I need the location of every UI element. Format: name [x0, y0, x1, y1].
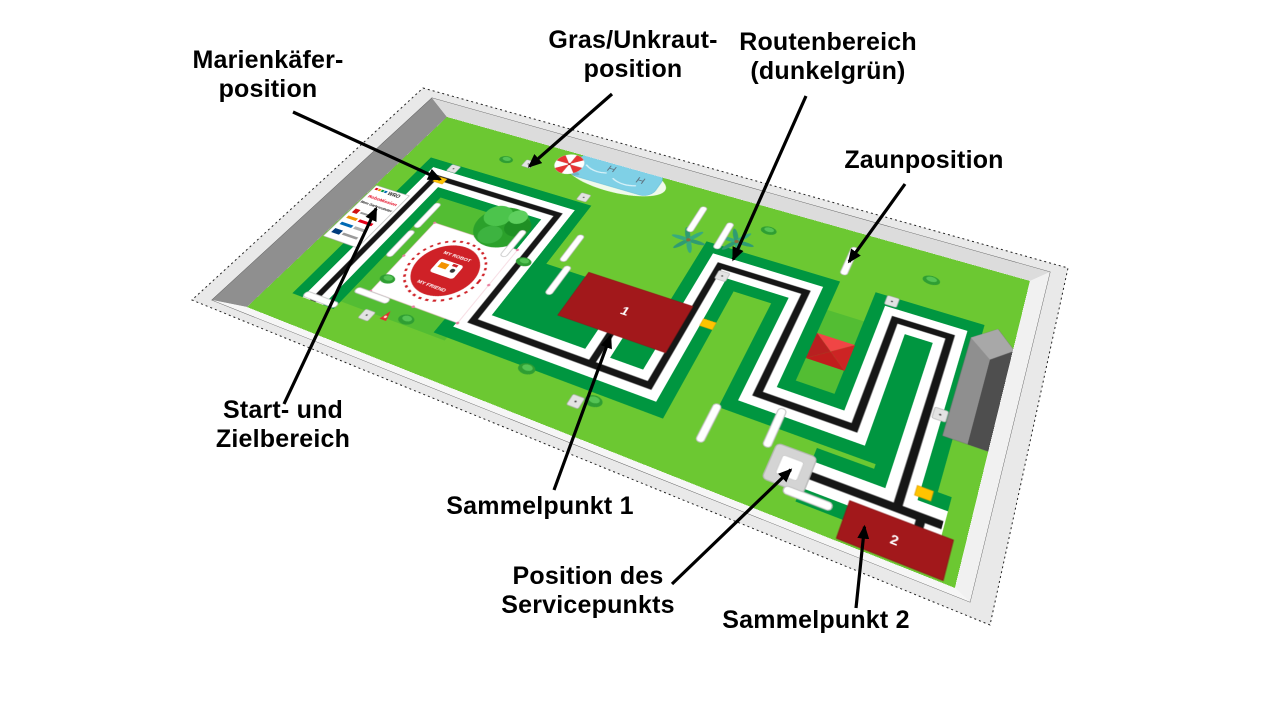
label-marienkaefer-position: Marienkäfer- position — [192, 46, 343, 104]
label-gras-unkraut-position: Gras/Unkraut- position — [548, 26, 717, 84]
label-start-zielbereich: Start- und Zielbereich — [216, 396, 350, 454]
label-routenbereich: Routenbereich (dunkelgrün) — [739, 28, 917, 86]
label-sammelpunkt-2: Sammelpunkt 2 — [722, 606, 909, 635]
game-mat: MY ROBOT MY FRIEND — [247, 117, 1030, 588]
diagram-stage: MY ROBOT MY FRIEND — [0, 0, 1280, 720]
label-zaunposition: Zaunposition — [844, 146, 1003, 175]
label-sammelpunkt-1: Sammelpunkt 1 — [446, 492, 633, 521]
label-position-servicepunkt: Position des Servicepunkts — [501, 562, 675, 620]
